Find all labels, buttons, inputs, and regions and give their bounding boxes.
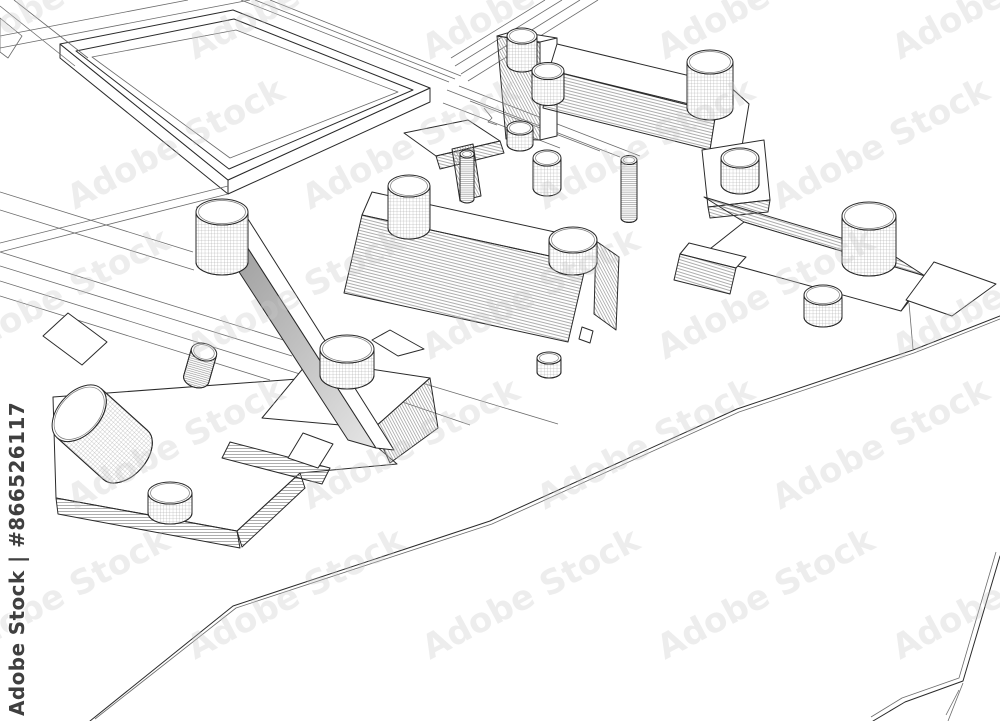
bolt-cylinder [532, 63, 564, 106]
watermark-tile-text: Adobe Stock [765, 69, 997, 218]
watermark-tile-text: Adobe Stock [415, 519, 647, 668]
bolt-cylinder [196, 199, 248, 275]
pillar-cylinder [537, 352, 561, 378]
watermark-tile-text: Adobe Stock [650, 519, 882, 668]
bolt-cylinder [721, 148, 759, 194]
watermark-id-label: Adobe Stock | #866526117 [5, 402, 29, 716]
watermark-tile-text: Adobe Stock [885, 0, 1000, 68]
threaded-rod [460, 150, 474, 203]
watermark-tile-text: Adobe Stock [650, 0, 882, 68]
wireframe-architectural-drawing: Adobe StockAdobe StockAdobe StockAdobe S… [0, 0, 1000, 721]
pillar-cylinder [507, 121, 533, 151]
bolt-cylinder [507, 28, 537, 72]
bolt-cylinder [320, 335, 374, 389]
watermark-tile-text: Adobe Stock [885, 519, 1000, 668]
stock-image-canvas: Adobe StockAdobe StockAdobe StockAdobe S… [0, 0, 1000, 721]
watermark-tile-text: Adobe Stock [530, 369, 762, 518]
pillar-cylinder [148, 482, 192, 524]
